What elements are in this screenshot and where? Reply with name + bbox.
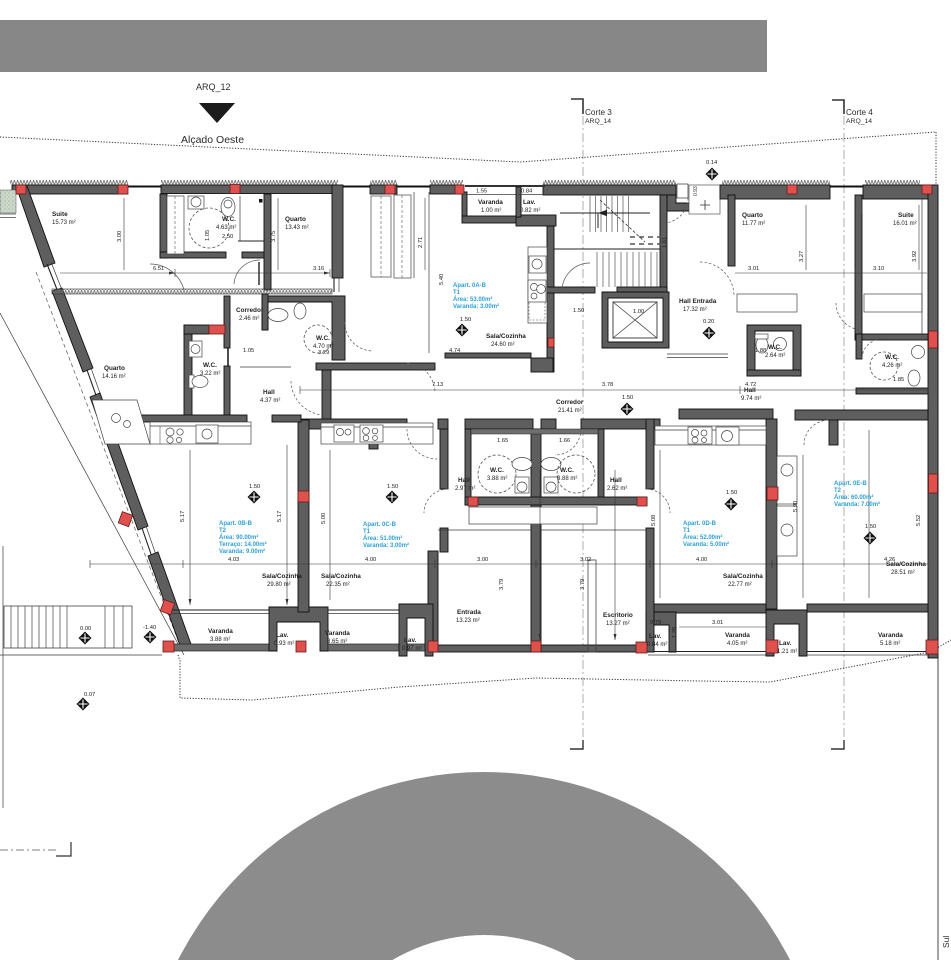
svg-text:3.79: 3.79 (499, 579, 505, 590)
svg-text:4.74: 4.74 (449, 348, 461, 354)
svg-text:Apart. 0A-B: Apart. 0A-B (453, 283, 487, 289)
svg-text:0.82 m²: 0.82 m² (520, 208, 540, 214)
svg-text:W.C.: W.C. (316, 335, 330, 342)
svg-text:Sul: Sul (941, 936, 951, 948)
svg-text:5.18 m²: 5.18 m² (880, 641, 900, 647)
svg-text:T1: T1 (683, 528, 691, 534)
svg-text:4.00: 4.00 (696, 557, 707, 563)
svg-text:5.17: 5.17 (180, 511, 186, 522)
svg-text:22.77 m²: 22.77 m² (728, 582, 752, 588)
svg-text:17.32 m²: 17.32 m² (683, 307, 707, 313)
svg-text:Varanda: 7.00m²: Varanda: 7.00m² (834, 501, 880, 508)
svg-text:0.07: 0.07 (84, 692, 95, 698)
svg-text:Varanda: 5.00m²: Varanda: 5.00m² (683, 541, 729, 548)
svg-text:5.40: 5.40 (439, 274, 445, 285)
svg-text:Sala/Cozinha: Sala/Cozinha (262, 573, 302, 580)
svg-text:15.73 m²: 15.73 m² (52, 220, 76, 226)
svg-text:4.03: 4.03 (228, 557, 239, 563)
svg-text:1.55: 1.55 (476, 189, 487, 195)
svg-text:2.97 m²: 2.97 m² (455, 486, 475, 492)
svg-text:Área: 52.00m²: Área: 52.00m² (683, 534, 722, 541)
svg-text:Apart. 0B-B: Apart. 0B-B (219, 521, 253, 527)
svg-text:ARQ_14: ARQ_14 (585, 118, 611, 125)
svg-text:0.93: 0.93 (693, 186, 699, 196)
svg-text:W.C.: W.C. (560, 467, 574, 474)
svg-text:W.C.: W.C. (768, 344, 782, 351)
svg-text:Corte 4: Corte 4 (846, 108, 873, 117)
svg-text:T1: T1 (363, 529, 371, 535)
svg-text:1.26: 1.26 (672, 627, 678, 638)
svg-text:Quarto: Quarto (104, 365, 125, 372)
svg-text:W.C.: W.C. (222, 216, 236, 223)
svg-text:Lav.: Lav. (649, 633, 662, 640)
svg-text:Hall: Hall (263, 389, 275, 396)
svg-text:13.23 m²: 13.23 m² (456, 618, 480, 624)
svg-text:0.14: 0.14 (706, 160, 718, 166)
svg-text:4.26 m²: 4.26 m² (882, 363, 902, 369)
svg-text:1.85: 1.85 (893, 377, 904, 383)
svg-text:Suite: Suite (898, 212, 914, 219)
svg-text:3.65 m²: 3.65 m² (327, 639, 347, 645)
svg-text:0.93 m²: 0.93 m² (274, 641, 294, 647)
svg-text:1.50: 1.50 (460, 317, 471, 323)
svg-text:3.79: 3.79 (580, 579, 586, 590)
svg-text:Área: 51.00m²: Área: 51.00m² (363, 535, 402, 542)
svg-text:Apart. 0E-B: Apart. 0E-B (834, 481, 867, 487)
svg-text:W.C.: W.C. (885, 354, 899, 361)
svg-text:0.84 m²: 0.84 m² (647, 642, 667, 648)
svg-text:9.74 m²: 9.74 m² (741, 396, 761, 402)
svg-text:Área: 90.00m²: Área: 90.00m² (219, 534, 258, 541)
svg-text:3.16: 3.16 (313, 266, 324, 272)
svg-text:22.35 m²: 22.35 m² (326, 582, 350, 588)
svg-text:5.17: 5.17 (277, 511, 283, 522)
svg-text:1.61: 1.61 (662, 237, 668, 248)
svg-text:3.88 m²: 3.88 m² (487, 476, 507, 482)
svg-text:W.C.: W.C. (203, 362, 217, 369)
svg-text:24.60 m²: 24.60 m² (491, 342, 515, 348)
svg-text:Sala/Cozinha: Sala/Cozinha (886, 561, 926, 568)
svg-text:11.77 m²: 11.77 m² (742, 221, 765, 227)
svg-text:2.71: 2.71 (418, 237, 424, 248)
svg-text:21.41 m²: 21.41 m² (558, 408, 582, 414)
svg-text:3.75: 3.75 (271, 231, 277, 242)
svg-text:3.88 m²: 3.88 m² (557, 476, 577, 482)
svg-text:13.43 m²: 13.43 m² (285, 225, 309, 231)
svg-text:7.13: 7.13 (432, 382, 443, 388)
svg-text:3.29: 3.29 (318, 350, 329, 356)
svg-text:W.C.: W.C. (490, 467, 504, 474)
svg-text:6.51: 6.51 (153, 266, 164, 272)
svg-text:Quarto: Quarto (285, 216, 306, 223)
svg-text:4.37 m²: 4.37 m² (260, 398, 280, 404)
svg-text:Varanda: Varanda (325, 630, 350, 637)
svg-text:Sala/Cozinha: Sala/Cozinha (723, 573, 763, 580)
svg-text:1.50: 1.50 (573, 308, 584, 314)
svg-text:3.78: 3.78 (602, 382, 613, 388)
svg-text:Suite: Suite (52, 211, 68, 218)
svg-text:Lav.: Lav. (779, 640, 792, 647)
svg-text:1.50: 1.50 (622, 395, 633, 401)
svg-text:0.84: 0.84 (521, 189, 533, 195)
svg-text:5.90: 5.90 (793, 501, 799, 512)
svg-text:Varanda: 3.00m²: Varanda: 3.00m² (363, 542, 409, 549)
svg-text:-1.40: -1.40 (143, 625, 156, 631)
svg-text:Varanda: 9.00m²: Varanda: 9.00m² (219, 548, 265, 555)
svg-text:3.01: 3.01 (712, 620, 723, 626)
svg-text:5.08: 5.08 (651, 515, 657, 526)
svg-text:Alçado Oeste: Alçado Oeste (181, 134, 244, 146)
svg-text:0.97 m²: 0.97 m² (402, 646, 422, 652)
svg-text:Lav.: Lav. (523, 199, 536, 206)
svg-text:Área: 53.00m²: Área: 53.00m² (453, 296, 492, 303)
svg-text:Corte 3: Corte 3 (585, 108, 612, 117)
svg-text:1.00: 1.00 (633, 309, 644, 315)
svg-text:4.00: 4.00 (365, 557, 376, 563)
svg-text:16.01 m²: 16.01 m² (893, 221, 917, 227)
svg-text:T2: T2 (834, 488, 842, 494)
svg-text:Lav.: Lav. (276, 632, 289, 639)
svg-text:T1: T1 (453, 290, 461, 296)
svg-text:13.27 m²: 13.27 m² (606, 621, 630, 627)
svg-text:1.65: 1.65 (497, 438, 508, 444)
svg-text:Escritorio: Escritorio (603, 612, 633, 619)
svg-text:Varanda: Varanda (878, 632, 903, 639)
svg-text:Varanda: Varanda (208, 628, 233, 635)
svg-text:28.51 m²: 28.51 m² (891, 570, 915, 576)
svg-text:Área: 60.00m²: Área: 60.00m² (834, 494, 873, 501)
svg-text:3.01: 3.01 (748, 266, 759, 272)
svg-text:Corredor: Corredor (556, 399, 584, 406)
svg-text:14.16 m²: 14.16 m² (102, 374, 126, 380)
svg-text:3.92: 3.92 (912, 251, 918, 262)
svg-text:Entrada: Entrada (457, 609, 481, 616)
svg-text:1.21 m²: 1.21 m² (777, 649, 797, 655)
svg-text:Apart. 0D-B: Apart. 0D-B (683, 521, 717, 527)
svg-text:5.52: 5.52 (916, 515, 922, 526)
svg-text:3.22 m²: 3.22 m² (200, 371, 220, 377)
svg-text:4.05 m²: 4.05 m² (727, 641, 747, 647)
svg-text:T2: T2 (219, 528, 227, 534)
svg-text:4.70 m²: 4.70 m² (313, 344, 333, 350)
svg-text:1.50: 1.50 (726, 490, 737, 496)
svg-text:3.00: 3.00 (117, 231, 123, 242)
svg-text:29.80 m²: 29.80 m² (267, 582, 291, 588)
svg-text:1.50: 1.50 (249, 484, 260, 490)
svg-text:3.02: 3.02 (580, 557, 591, 563)
svg-text:0.20: 0.20 (703, 319, 714, 325)
svg-text:Hall: Hall (458, 477, 470, 484)
svg-text:1.50: 1.50 (865, 524, 876, 530)
svg-text:2.46 m²: 2.46 m² (239, 316, 259, 322)
svg-text:1.05: 1.05 (243, 348, 254, 354)
svg-text:2.50: 2.50 (222, 234, 233, 240)
svg-text:Hall Entrada: Hall Entrada (679, 298, 717, 305)
svg-text:3.00: 3.00 (477, 557, 488, 563)
svg-text:Quarto: Quarto (742, 212, 763, 219)
svg-text:3.10: 3.10 (873, 266, 884, 272)
svg-text:Terraço: 14.00m²: Terraço: 14.00m² (219, 541, 267, 548)
svg-text:1.66: 1.66 (559, 438, 570, 444)
svg-text:Varanda: Varanda (725, 632, 750, 639)
svg-text:ARQ_14: ARQ_14 (846, 118, 872, 125)
svg-text:Hall: Hall (744, 387, 756, 394)
svg-text:Varanda: Varanda (478, 199, 503, 206)
svg-text:ARQ_12: ARQ_12 (196, 82, 231, 92)
svg-text:Varanda: 3.00m²: Varanda: 3.00m² (453, 303, 499, 310)
svg-text:1.00 m²: 1.00 m² (481, 208, 501, 214)
svg-text:0.79: 0.79 (650, 620, 661, 626)
svg-text:Sala/Cozinha: Sala/Cozinha (486, 333, 526, 340)
svg-text:1.50: 1.50 (387, 484, 398, 490)
svg-text:1.05: 1.05 (205, 230, 211, 241)
svg-text:3.88 m²: 3.88 m² (210, 637, 230, 643)
svg-text:3.27: 3.27 (799, 251, 805, 262)
svg-text:Lav.: Lav. (404, 637, 417, 644)
svg-text:Corredor: Corredor (236, 307, 264, 314)
svg-text:Apart. 0C-B: Apart. 0C-B (363, 522, 397, 528)
svg-text:Sala/Cozinha: Sala/Cozinha (321, 573, 361, 580)
svg-text:Hall: Hall (610, 477, 622, 484)
svg-text:2.62 m²: 2.62 m² (607, 486, 627, 492)
svg-text:4.63 m²: 4.63 m² (216, 225, 236, 231)
svg-text:5.00: 5.00 (321, 513, 327, 524)
svg-text:0.00: 0.00 (80, 626, 91, 632)
svg-text:2.64 m²: 2.64 m² (765, 353, 785, 359)
